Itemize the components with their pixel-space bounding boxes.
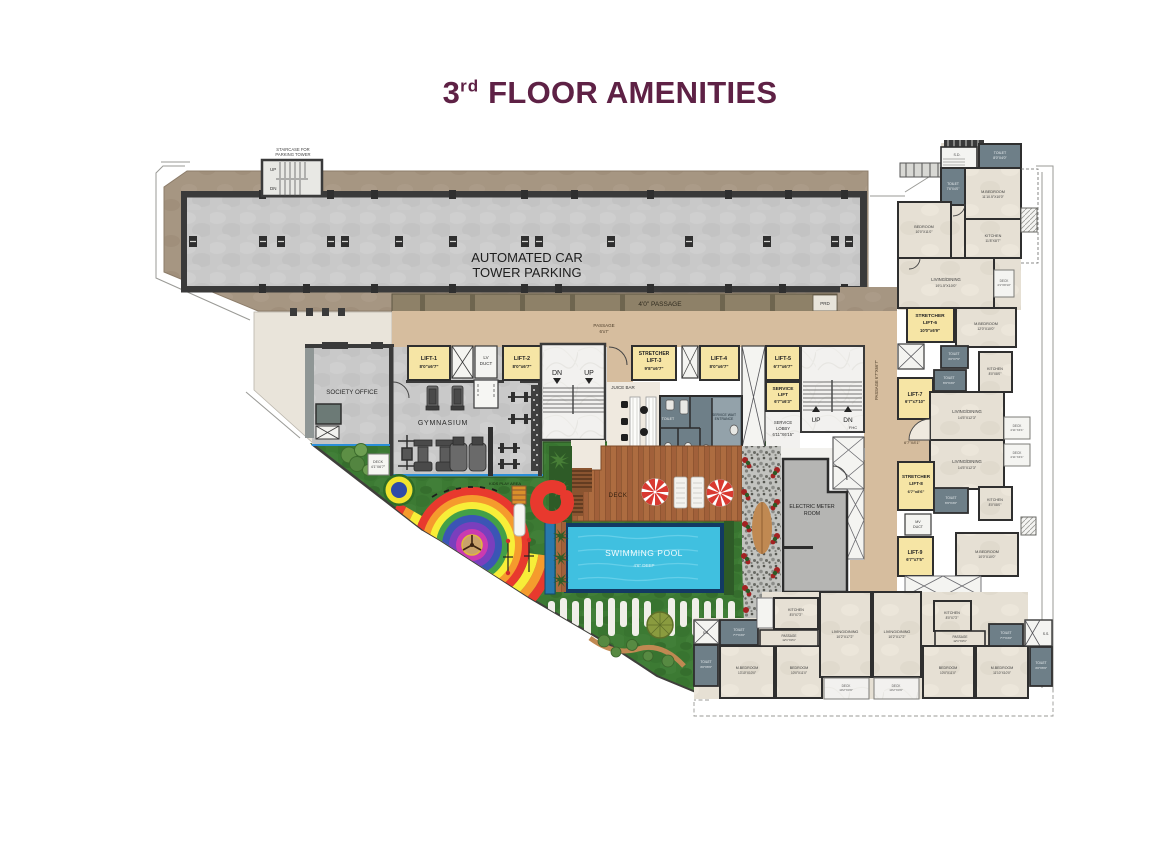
svg-text:4'11"X4'1": 4'11"X4'1"	[1010, 428, 1023, 432]
svg-text:TOILET: TOILET	[945, 496, 956, 500]
svg-text:KITCHEN: KITCHEN	[987, 367, 1003, 371]
svg-text:8'0"x6'7": 8'0"x6'7"	[710, 364, 729, 369]
svg-text:PASSAGE 6'7"X66'7": PASSAGE 6'7"X66'7"	[874, 360, 879, 400]
svg-text:TOILET: TOILET	[948, 352, 959, 356]
svg-text:UP: UP	[811, 417, 820, 424]
svg-text:PASSAGE: PASSAGE	[593, 323, 614, 328]
svg-text:6'7"x7'10": 6'7"x7'10"	[905, 399, 925, 404]
svg-text:S.S.: S.S.	[1043, 632, 1049, 636]
svg-text:19'1.5"X10'0": 19'1.5"X10'0"	[935, 284, 957, 288]
svg-text:DUCT: DUCT	[913, 525, 924, 529]
svg-text:4'11"X4'1": 4'11"X4'1"	[1010, 455, 1023, 459]
svg-text:8'0"x6'7": 8'0"x6'7"	[420, 364, 439, 369]
svg-text:DN: DN	[552, 370, 562, 377]
svg-text:BEDROOM: BEDROOM	[790, 666, 809, 670]
svg-text:8'0"X7'2": 8'0"X7'2"	[790, 613, 803, 617]
svg-text:12'0"X10'0": 12'0"X10'0"	[977, 327, 995, 331]
svg-text:LIFT-2: LIFT-2	[514, 356, 530, 362]
svg-text:TOILET: TOILET	[733, 628, 744, 632]
svg-text:8'0"X8'0": 8'0"X8'0"	[989, 372, 1002, 376]
svg-text:4'1"X8'10": 4'1"X8'10"	[997, 283, 1011, 287]
svg-text:6'7"x6'7": 6'7"x6'7"	[774, 364, 793, 369]
svg-text:7'6"X4'0": 7'6"X4'0"	[947, 187, 960, 191]
svg-text:LIFT-8: LIFT-8	[909, 481, 923, 486]
svg-text:DECK: DECK	[609, 493, 628, 499]
svg-text:10'2"X4'6": 10'2"X4'6"	[889, 688, 903, 692]
svg-text:11'10"X10'0": 11'10"X10'0"	[993, 671, 1011, 675]
svg-text:STRETCHER: STRETCHER	[902, 474, 931, 479]
svg-text:LIFT-5: LIFT-5	[775, 356, 791, 362]
svg-text:UP: UP	[270, 167, 276, 172]
svg-text:LIFT-9: LIFT-9	[908, 550, 923, 556]
svg-text:10'0"X11'0": 10'0"X11'0"	[915, 230, 933, 234]
svg-text:DN: DN	[843, 417, 853, 424]
svg-text:KITCHEN: KITCHEN	[985, 234, 1002, 238]
svg-text:ENTRANCE: ENTRANCE	[715, 417, 734, 421]
svg-text:10'0"x6'9": 10'0"x6'9"	[920, 328, 940, 333]
svg-text:TOWER PARKING: TOWER PARKING	[472, 265, 581, 280]
svg-text:STRETCHER: STRETCHER	[915, 313, 945, 319]
svg-text:6'7"x8'6": 6'7"x8'6"	[908, 489, 925, 494]
svg-text:STRETCHER: STRETCHER	[639, 351, 670, 357]
svg-text:4'1"X6'7": 4'1"X6'7"	[371, 465, 386, 469]
svg-text:TOILET: TOILET	[700, 660, 711, 664]
svg-text:M.BEDROOM: M.BEDROOM	[991, 666, 1014, 670]
svg-text:8'0"X7'2": 8'0"X7'2"	[946, 616, 959, 620]
svg-text:UP: UP	[584, 370, 594, 377]
svg-text:TOILET: TOILET	[947, 182, 959, 186]
svg-text:14'5"X12'3": 14'5"X12'3"	[958, 416, 977, 420]
svg-text:SWIMMING POOL: SWIMMING POOL	[605, 548, 683, 558]
svg-text:KITCHEN: KITCHEN	[987, 498, 1003, 502]
svg-text:M.BEDROOM: M.BEDROOM	[975, 550, 999, 554]
svg-text:ROOM: ROOM	[804, 511, 820, 517]
svg-text:7'7"X4'0": 7'7"X4'0"	[1000, 636, 1012, 640]
svg-text:6'7"X8'1": 6'7"X8'1"	[904, 440, 921, 445]
svg-text:GYMNASIUM: GYMNASIUM	[418, 420, 468, 427]
svg-text:6'x7': 6'x7'	[600, 329, 609, 334]
svg-text:4'0" PASSAGE: 4'0" PASSAGE	[638, 301, 682, 308]
svg-text:6'7"x6'3": 6'7"x6'3"	[774, 399, 792, 404]
svg-text:KITCHEN: KITCHEN	[944, 611, 960, 615]
svg-text:9'8"x6'7": 9'8"x6'7"	[645, 366, 664, 371]
svg-text:M.BEDROOM: M.BEDROOM	[981, 190, 1005, 194]
svg-text:4'0"X6'6": 4'0"X6'6"	[1035, 666, 1047, 670]
svg-text:KITCHEN: KITCHEN	[788, 608, 804, 612]
svg-text:AUTOMATED CAR: AUTOMATED CAR	[471, 250, 582, 265]
svg-text:TOILET: TOILET	[943, 376, 954, 380]
svg-text:JUICE BAR: JUICE BAR	[611, 385, 635, 390]
svg-text:LIVING/DINING: LIVING/DINING	[952, 459, 982, 464]
svg-text:4'6" DEEP: 4'6" DEEP	[634, 563, 655, 568]
svg-text:SERVICE: SERVICE	[774, 420, 793, 425]
svg-text:KIDS PLAY AREA: KIDS PLAY AREA	[489, 481, 521, 486]
svg-text:8'0"X8'0": 8'0"X8'0"	[989, 503, 1002, 507]
svg-text:PRD: PRD	[820, 301, 830, 306]
svg-text:LIFT-6: LIFT-6	[923, 320, 937, 326]
svg-text:10'0"X10'0": 10'0"X10'0"	[978, 555, 996, 559]
svg-text:12'1"X3'1": 12'1"X3'1"	[782, 638, 796, 642]
svg-text:TOILET: TOILET	[662, 417, 675, 421]
svg-text:10'0"X11'0": 10'0"X11'0"	[940, 671, 956, 675]
svg-text:6'6"X4'0": 6'6"X4'0"	[943, 381, 955, 385]
svg-text:LIVING/DINING: LIVING/DINING	[832, 630, 859, 634]
svg-text:14'5"X12'3": 14'5"X12'3"	[958, 466, 977, 470]
svg-text:LIFT-7: LIFT-7	[908, 392, 923, 398]
svg-text:4'0"X6'6": 4'0"X6'6"	[700, 665, 712, 669]
svg-text:4'0"X7'6": 4'0"X7'6"	[948, 357, 960, 361]
svg-text:LIFT-3: LIFT-3	[647, 358, 662, 364]
svg-text:DECK: DECK	[373, 460, 384, 464]
svg-text:8'0"x6'7": 8'0"x6'7"	[513, 364, 532, 369]
svg-text:M.BEDROOM: M.BEDROOM	[736, 666, 759, 670]
svg-text:10'2"X17'2": 10'2"X17'2"	[836, 635, 854, 639]
svg-text:10'0"X11'0": 10'0"X11'0"	[791, 671, 807, 675]
svg-text:6'6"X4'0": 6'6"X4'0"	[945, 501, 957, 505]
svg-text:10'2"X17'2": 10'2"X17'2"	[888, 635, 906, 639]
svg-text:LV: LV	[483, 355, 488, 360]
svg-text:BEDROOM: BEDROOM	[939, 666, 958, 670]
svg-text:FHC: FHC	[849, 425, 857, 430]
svg-text:TOILET: TOILET	[1035, 661, 1046, 665]
svg-text:LIVING/DINING: LIVING/DINING	[931, 277, 961, 282]
svg-text:DN: DN	[270, 186, 277, 191]
svg-text:TOILET: TOILET	[994, 151, 1007, 155]
svg-text:DUCT: DUCT	[480, 361, 493, 366]
svg-text:7'7"X4'0": 7'7"X4'0"	[733, 633, 745, 637]
svg-text:LIFT: LIFT	[778, 392, 788, 398]
svg-text:S.D.: S.D.	[954, 153, 961, 157]
svg-text:LIVING/DINING: LIVING/DINING	[884, 630, 911, 634]
svg-text:M.BEDROOM: M.BEDROOM	[974, 322, 998, 326]
svg-text:LOBBY: LOBBY	[776, 426, 790, 431]
svg-text:11'8"X8'7": 11'8"X8'7"	[985, 239, 1001, 243]
svg-text:6'11"X6'15": 6'11"X6'15"	[772, 432, 794, 437]
svg-text:12'1"X3'1": 12'1"X3'1"	[953, 639, 967, 643]
svg-text:SOCIETY OFFICE: SOCIETY OFFICE	[326, 389, 377, 396]
svg-text:PARKING TOWER: PARKING TOWER	[275, 152, 310, 157]
svg-text:10'2"X4'6": 10'2"X4'6"	[839, 688, 853, 692]
svg-text:ELECTRIC METER: ELECTRIC METER	[789, 504, 835, 510]
svg-text:LIFT-4: LIFT-4	[711, 356, 728, 362]
svg-text:11'10.5"X10'0": 11'10.5"X10'0"	[982, 195, 1005, 199]
svg-text:8'0"X4'0": 8'0"X4'0"	[993, 156, 1007, 160]
svg-text:TOILET: TOILET	[1000, 631, 1011, 635]
svg-text:S.S.: S.S.	[703, 631, 709, 635]
svg-text:13'10"X10'0": 13'10"X10'0"	[738, 671, 756, 675]
svg-text:LIVING/DINING: LIVING/DINING	[952, 409, 982, 414]
svg-text:SERVICE: SERVICE	[773, 386, 795, 392]
svg-text:LIFT-1: LIFT-1	[421, 356, 437, 362]
svg-text:MV: MV	[915, 520, 921, 524]
svg-text:6'7"x7'5": 6'7"x7'5"	[906, 557, 924, 562]
svg-text:BEDROOM: BEDROOM	[914, 225, 934, 229]
